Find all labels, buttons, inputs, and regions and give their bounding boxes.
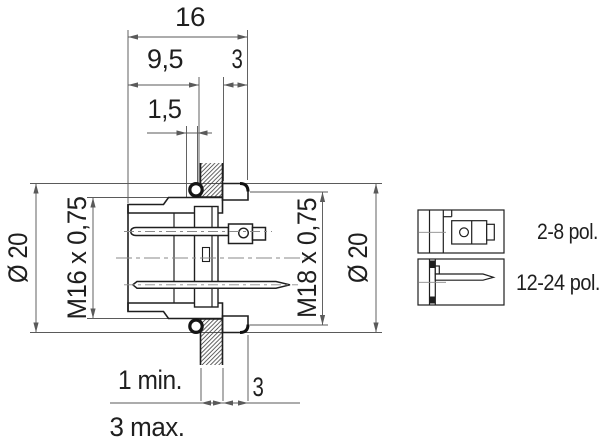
connector-drawing: 16 9,5 3 1,5 Ø 20 M16 x 0,75 M18 x 0,75 … [0,0,600,442]
dimension-labels: 16 9,5 3 1,5 Ø 20 M16 x 0,75 M18 x 0,75 … [3,2,373,442]
dim-nut-width-bottom: 3 [253,372,264,402]
dim-rear-diameter: Ø 20 [343,233,373,283]
dim-front-length: 9,5 [147,44,183,74]
variant-icon-2-8-pol [418,210,504,253]
dim-front-diameter: Ø 20 [3,233,33,283]
dim-panel-max: 3 max. [110,412,185,442]
variant-label-2-8-pol: 2-8 pol. [537,219,598,244]
variant-label-12-24-pol: 12-24 pol. [516,270,600,295]
o-ring-bottom [190,320,202,332]
o-ring-top [190,184,202,196]
technical-drawing-page: 16 9,5 3 1,5 Ø 20 M16 x 0,75 M18 x 0,75 … [0,0,600,442]
eyelet-hole [239,228,249,238]
eyelet-tab [253,228,266,241]
dim-rear-thread: M18 x 0,75 [292,198,322,318]
variant-icon-12-24-pol [418,259,504,305]
dim-panel-min: 1 min. [118,365,182,395]
variant-labels: 2-8 pol. 12-24 pol. [516,219,600,295]
dim-nut-width-top: 3 [232,44,243,74]
panel-section-bottom [201,319,223,365]
dim-front-thread: M16 x 0,75 [62,197,92,320]
keyway [203,248,210,262]
panel-section-top [201,163,223,197]
dim-groove-width: 1,5 [148,94,182,124]
connector-body [128,163,248,365]
dim-overall-width: 16 [175,2,205,32]
